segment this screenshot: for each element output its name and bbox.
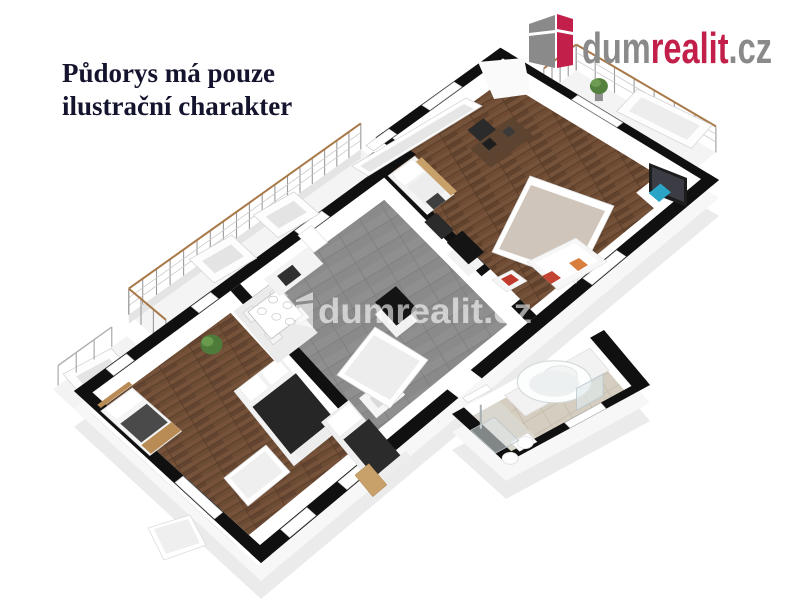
svg-text:dumrealit.cz: dumrealit.cz bbox=[318, 292, 532, 331]
svg-text:dumrealit.cz: dumrealit.cz bbox=[582, 24, 772, 73]
